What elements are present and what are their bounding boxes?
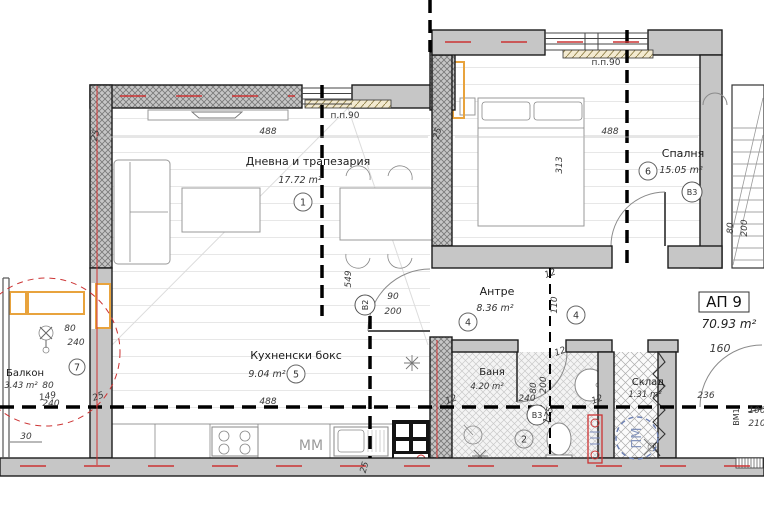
dim-balcony-240b: 240 bbox=[42, 399, 59, 409]
wall-storage-top bbox=[648, 340, 678, 352]
apartment-tag: АП 9 70.93 m² bbox=[699, 292, 757, 331]
dim-balcony-240a: 240 bbox=[67, 338, 84, 348]
wall-bottom-band bbox=[0, 458, 764, 476]
room-circle-kitchen: 5 bbox=[287, 365, 305, 383]
room-area-balcony: 3.43 m² bbox=[4, 381, 38, 391]
apartment-number: АП 9 bbox=[706, 293, 742, 311]
dim-balcony-30: 30 bbox=[20, 432, 32, 442]
room-number-kitchen: 5 bbox=[293, 370, 299, 381]
wall-hall-top bbox=[432, 246, 612, 268]
room-area-bedroom: 15.05 m² bbox=[659, 165, 702, 176]
dim-bedroom-width: 488 bbox=[601, 127, 618, 137]
dim-living-width: 488 bbox=[259, 127, 276, 137]
room-number-balcony: 7 bbox=[74, 363, 80, 374]
room-label-living: Дневна и трапезария bbox=[246, 155, 371, 168]
wall-left-upper bbox=[90, 85, 112, 268]
room-number-hall-b: 4 bbox=[573, 311, 579, 322]
dim-bedroom-depth: 313 bbox=[555, 156, 565, 173]
wall-top-bedroom-right bbox=[648, 30, 722, 55]
parapet-bedroom bbox=[563, 50, 653, 58]
balcony-door-opening bbox=[92, 283, 111, 329]
parapet-label-living: п.п.90 bbox=[331, 111, 360, 121]
dim-balcony-80b: 80 bbox=[42, 381, 54, 391]
room-area-hall: 8.36 m² bbox=[476, 303, 513, 314]
dim-living-height: 549 bbox=[344, 270, 354, 287]
room-circle-bedroom: 6 bbox=[639, 162, 657, 180]
dim-bath-240: 240 bbox=[518, 394, 535, 404]
room-label-balcony: Балкон bbox=[6, 368, 44, 379]
room-number-hall-a: 4 bbox=[465, 318, 471, 329]
room-area-storage: 1.31 m² bbox=[628, 390, 662, 400]
dim-door-b3-h: 200 bbox=[539, 376, 549, 393]
room-area-living: 17.72 m² bbox=[278, 175, 321, 186]
wall-bath-top-right bbox=[566, 340, 612, 352]
door-id-b2: В2 bbox=[355, 295, 375, 315]
room-area-kitchen: 9.04 m² bbox=[248, 369, 285, 380]
room-label-storage: Склад bbox=[632, 377, 665, 388]
wall-living-bedroom bbox=[432, 55, 452, 246]
dim-corridor-160: 160 bbox=[710, 342, 731, 355]
light-point-icon bbox=[404, 355, 420, 371]
room-label-bath: Баня bbox=[479, 367, 505, 378]
dim-hall-110: 110 bbox=[550, 296, 560, 313]
sink bbox=[334, 427, 388, 456]
wall-bath-top-left bbox=[452, 340, 518, 352]
room-number-bath: 2 bbox=[521, 435, 527, 446]
dim-door-b2-w: 90 bbox=[387, 292, 399, 302]
room-circle-hall-a: 4 bbox=[459, 313, 477, 331]
coffee-table bbox=[182, 188, 260, 232]
room-label-hall: Антре bbox=[480, 285, 515, 298]
dim-bedroom-door-w: 80 bbox=[726, 222, 736, 234]
room-circle-living: 1 bbox=[294, 193, 312, 211]
tv-board bbox=[148, 110, 288, 120]
dim-corridor-236: 236 bbox=[697, 391, 714, 401]
entry-door-h: 210 bbox=[748, 419, 764, 429]
door-id-b3-bath-label: В3 bbox=[532, 411, 543, 420]
floor-plan-drawing: ПМ Дневна и трапезария 17.72 m² Спалня 1… bbox=[0, 0, 764, 510]
pm-label: ПМ bbox=[630, 428, 645, 449]
room-circle-hall-b: 4 bbox=[567, 306, 585, 324]
bed bbox=[460, 98, 584, 226]
dishwasher-label: ММ bbox=[299, 438, 323, 454]
room-label-kitchen: Кухненски бокс bbox=[250, 349, 342, 362]
entry-door-id: ВМ1 bbox=[732, 408, 741, 425]
room-area-bath: 4.20 m² bbox=[470, 382, 504, 392]
dim-door-b2-h: 200 bbox=[384, 307, 401, 317]
dim-door-b3-w: 80 bbox=[529, 382, 539, 394]
wall-right-bedroom bbox=[700, 55, 722, 268]
room-label-bedroom: Спалня bbox=[662, 147, 704, 160]
room-number-bedroom: 6 bbox=[645, 167, 651, 178]
sofa bbox=[114, 160, 170, 264]
dim-bedroom-door-h: 200 bbox=[740, 219, 750, 236]
door-id-b3-bedroom: В3 bbox=[682, 182, 702, 202]
dim-kitchen-width: 488 bbox=[259, 397, 276, 407]
stove bbox=[212, 427, 258, 456]
room-circle-balcony: 7 bbox=[69, 359, 85, 375]
wall-bath-storage bbox=[598, 352, 614, 458]
parapet-label-bedroom: п.п.90 bbox=[592, 58, 621, 68]
room-number-living: 1 bbox=[300, 198, 306, 209]
floor-plan: ПМ Дневна и трапезария 17.72 m² Спалня 1… bbox=[0, 0, 764, 510]
door-id-b3-bedroom-label: В3 bbox=[687, 188, 698, 197]
door-id-b2-label: В2 bbox=[361, 300, 370, 311]
dim-balcony-80a: 80 bbox=[64, 324, 76, 334]
apartment-area: 70.93 m² bbox=[702, 317, 757, 331]
wall-hall-top-right bbox=[668, 246, 722, 268]
